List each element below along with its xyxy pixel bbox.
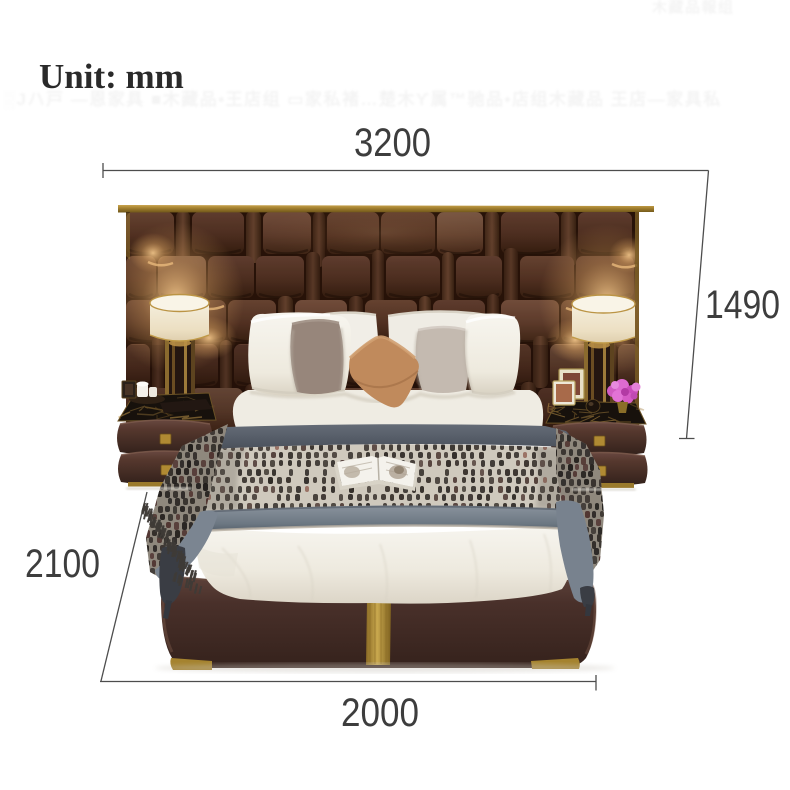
svg-text:Unit: mm: Unit: mm xyxy=(39,57,184,96)
svg-text:3200: 3200 xyxy=(354,121,431,165)
svg-text:1490: 1490 xyxy=(705,283,780,327)
svg-text:木藏品報组: 木藏品報组 xyxy=(651,0,735,16)
svg-text:2100: 2100 xyxy=(25,542,100,586)
svg-text:2000: 2000 xyxy=(341,691,419,735)
